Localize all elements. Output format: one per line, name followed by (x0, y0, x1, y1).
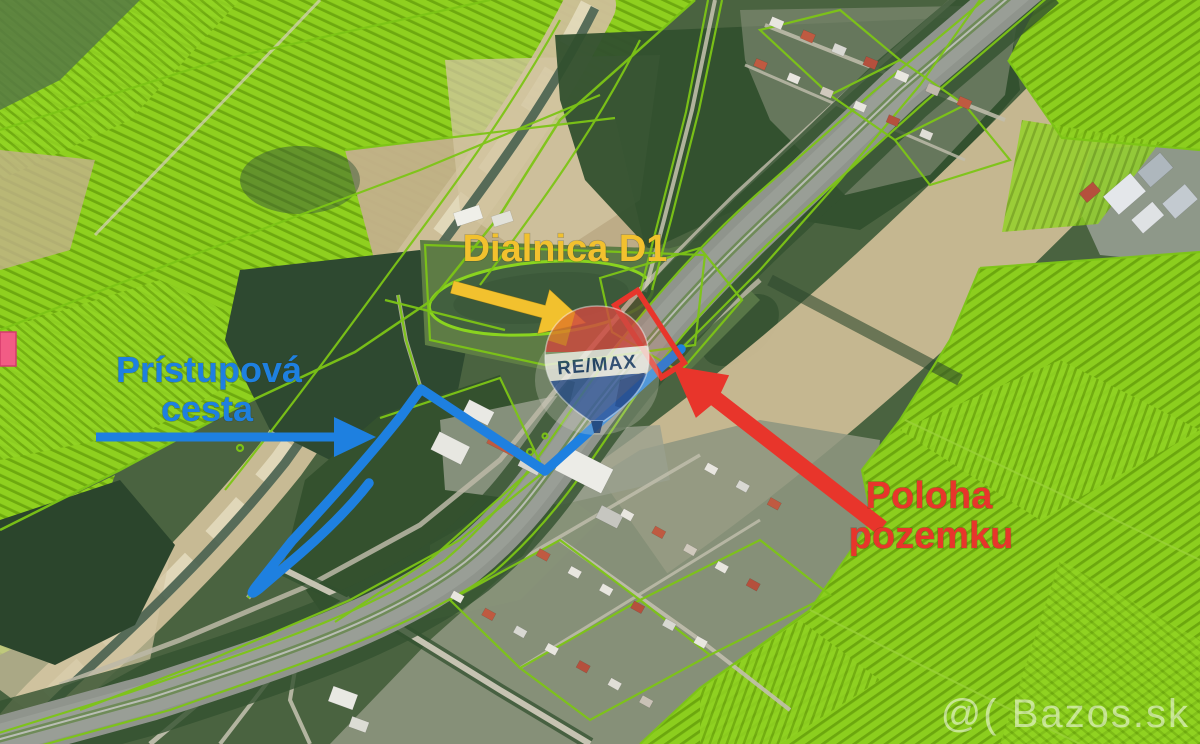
access-road-label-line1: Prístupová (116, 349, 303, 390)
listing-map-image: RE/MAX Dialnica D1 Prístupová cesta Polo… (0, 0, 1200, 744)
parcel-label-line2: pozemku (849, 515, 1014, 557)
highway-label: Dialnica D1 (463, 228, 668, 270)
satellite-map: RE/MAX Dialnica D1 Prístupová cesta Polo… (0, 0, 1200, 744)
pink-marker (0, 332, 16, 366)
watermark: @( Bazos.sk (941, 692, 1190, 736)
access-road-label-line2: cesta (161, 388, 254, 429)
parcel-label-line1: Poloha (866, 475, 994, 517)
